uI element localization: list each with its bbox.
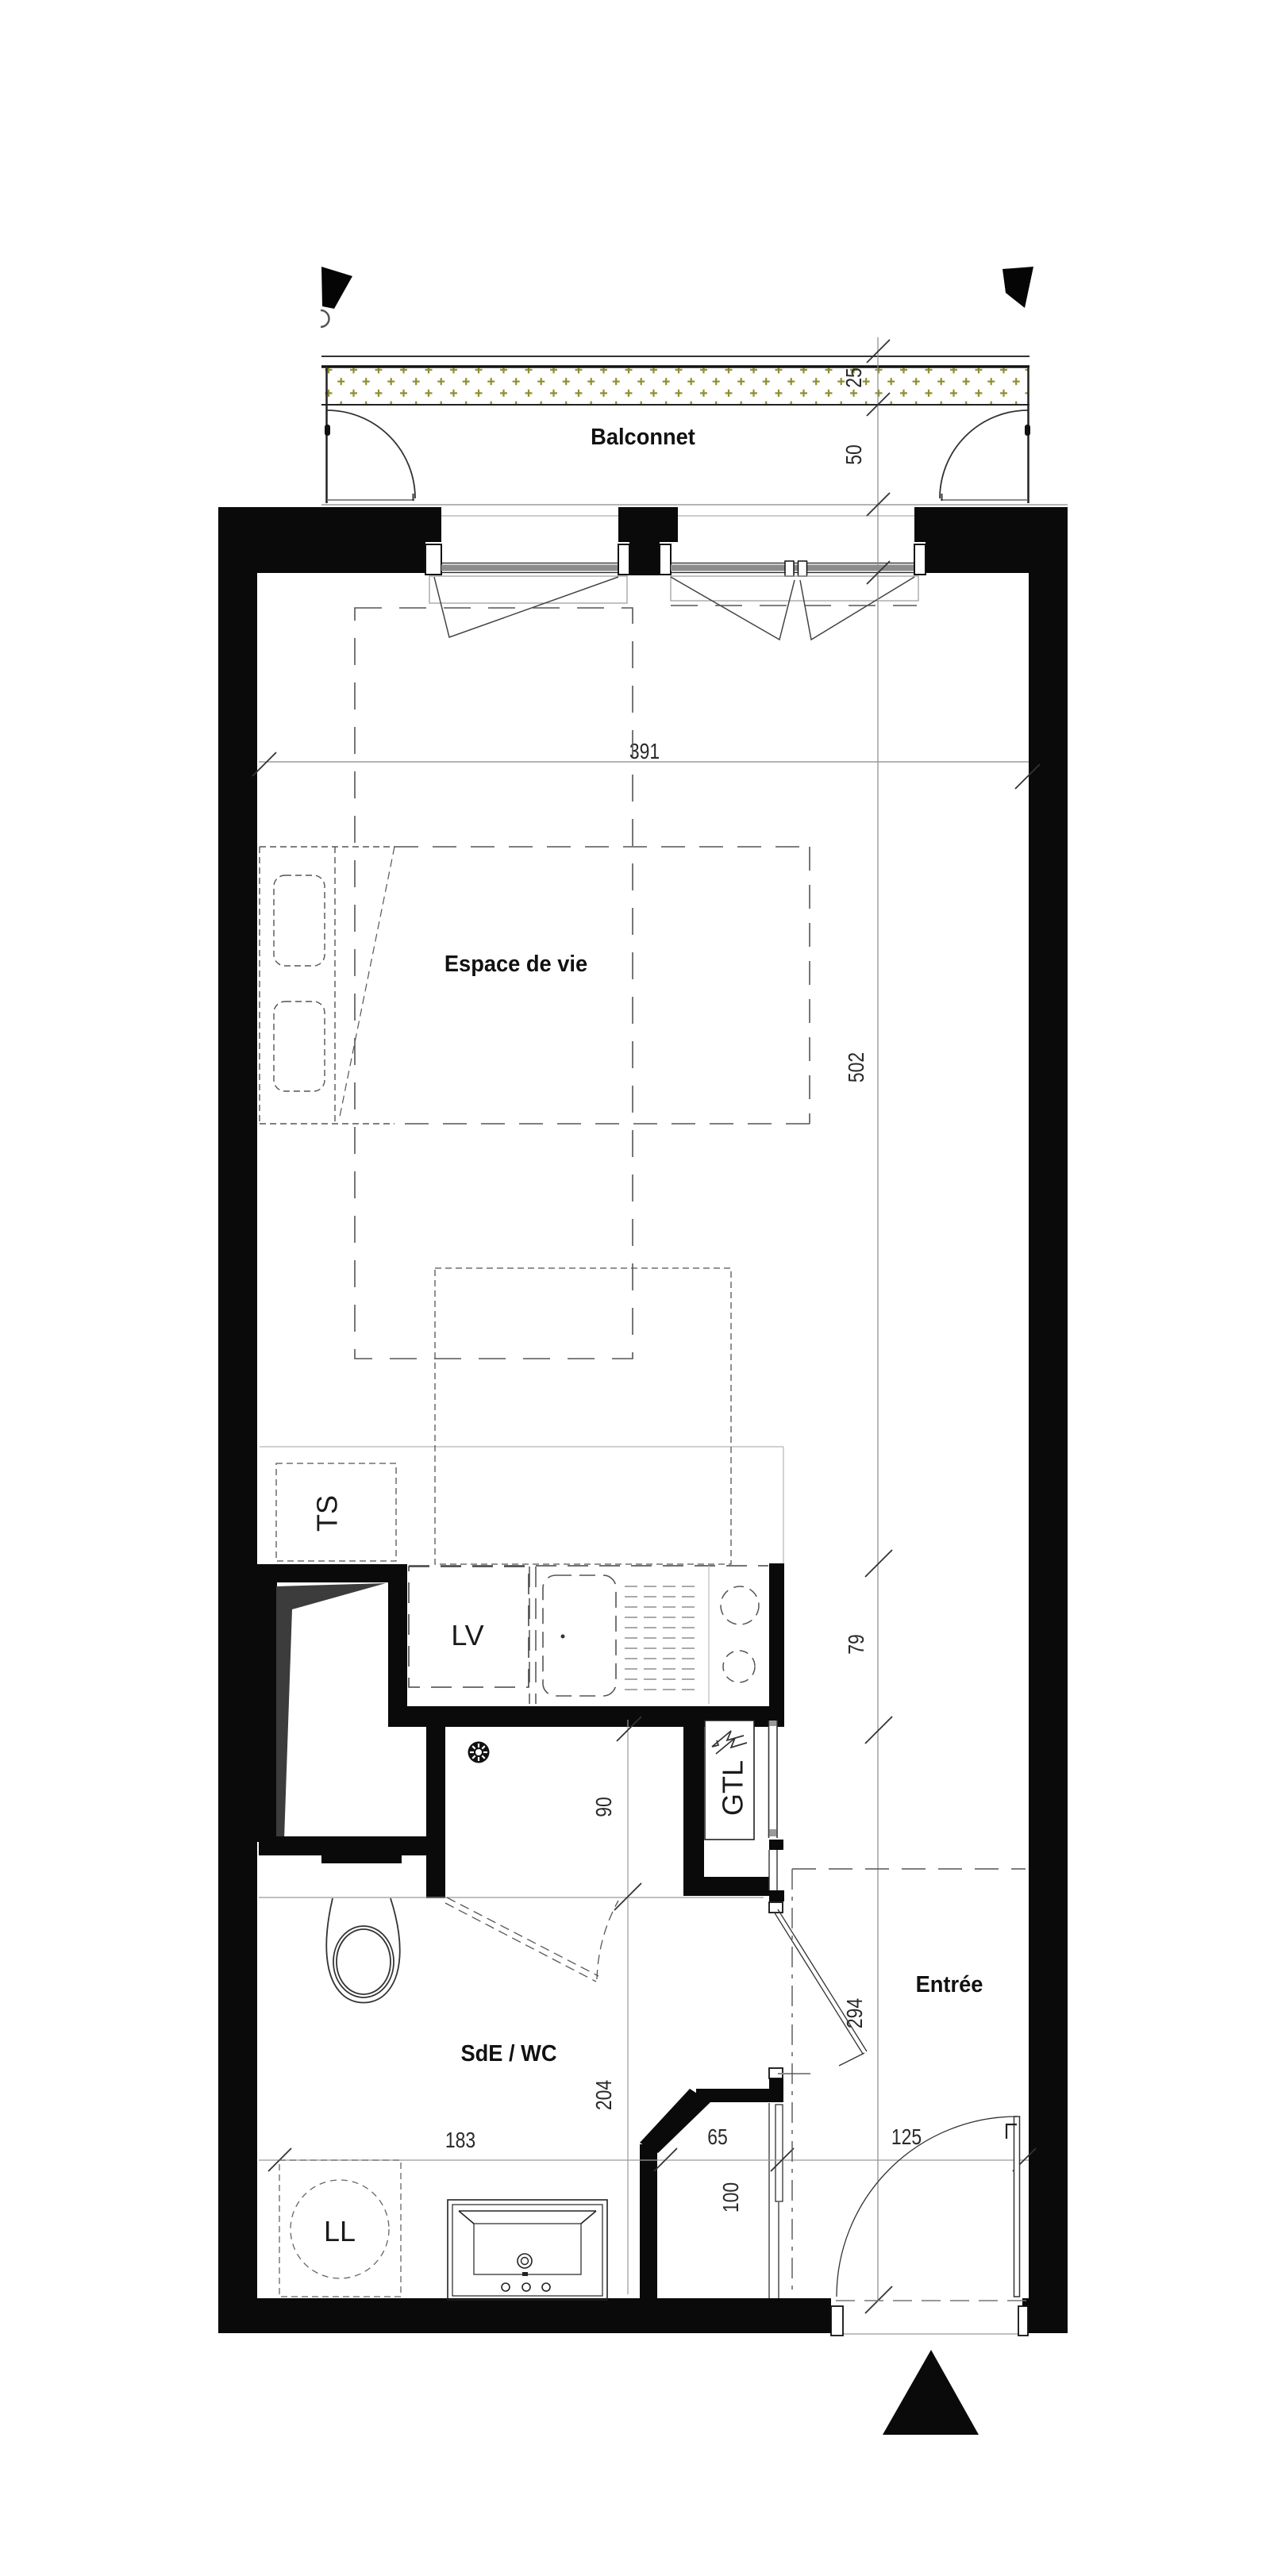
svg-text:204: 204 <box>592 2080 617 2110</box>
svg-text:25: 25 <box>842 367 867 388</box>
svg-text:125: 125 <box>891 2125 922 2150</box>
svg-text:90: 90 <box>592 1797 617 1817</box>
svg-text:50: 50 <box>842 444 867 465</box>
svg-text:502: 502 <box>845 1052 869 1082</box>
svg-text:183: 183 <box>445 2128 475 2153</box>
svg-text:SdE / WC: SdE / WC <box>460 2040 556 2066</box>
svg-text:391: 391 <box>629 740 660 764</box>
svg-text:79: 79 <box>845 1634 869 1655</box>
svg-text:LL: LL <box>324 2215 356 2247</box>
svg-text:Espace de vie: Espace de vie <box>444 951 587 976</box>
svg-text:Balconnet: Balconnet <box>591 424 695 449</box>
svg-text:LV: LV <box>451 1619 483 1651</box>
svg-text:TS: TS <box>311 1495 344 1532</box>
svg-text:GTL: GTL <box>717 1760 749 1816</box>
svg-text:65: 65 <box>707 2125 728 2150</box>
svg-text:294: 294 <box>843 1998 868 2028</box>
svg-text:Entrée: Entrée <box>916 1971 983 1997</box>
svg-text:100: 100 <box>719 2182 744 2213</box>
